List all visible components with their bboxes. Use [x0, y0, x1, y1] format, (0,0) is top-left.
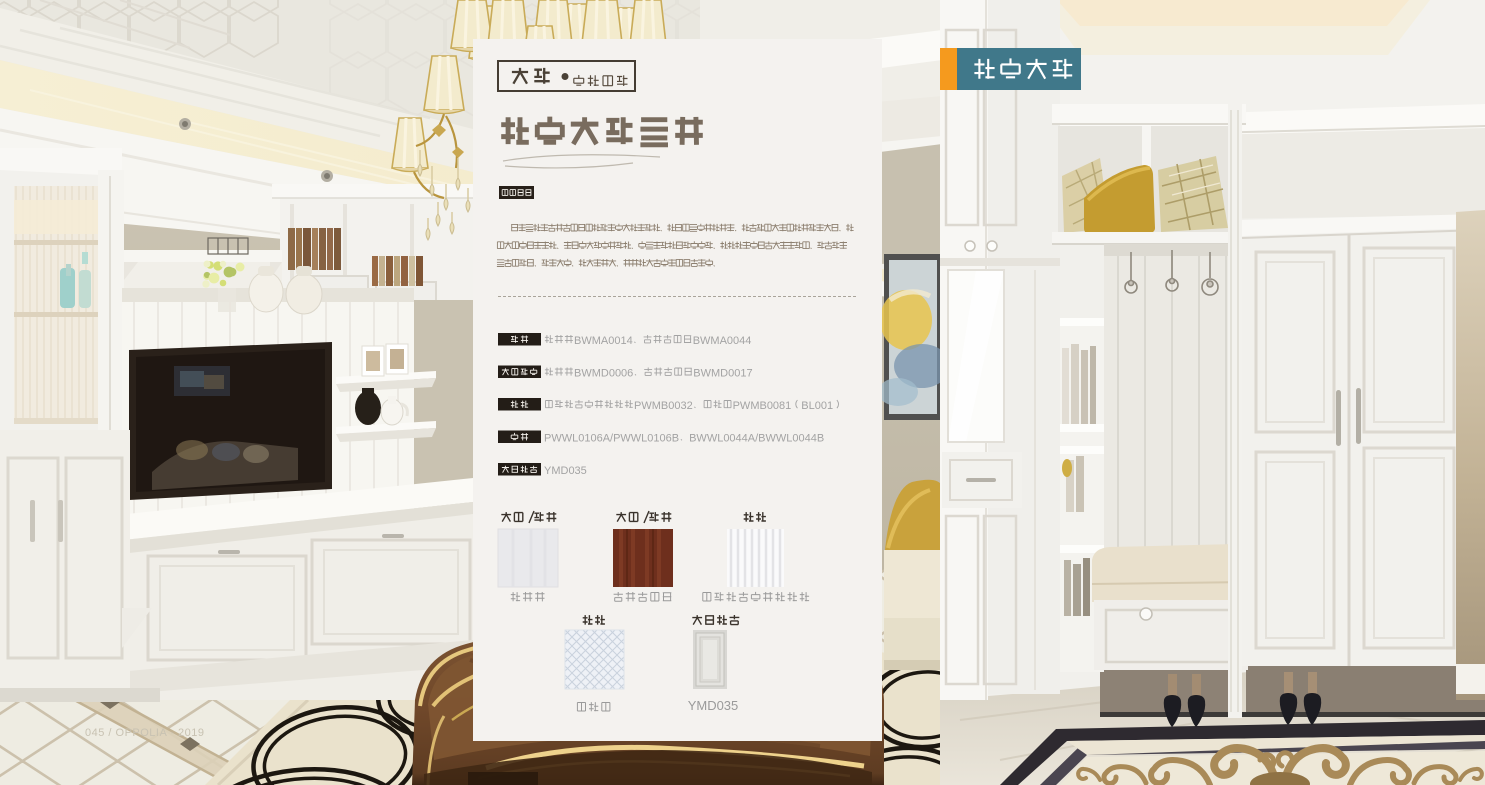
svg-text:BWWL0044A/BWWL0044B: BWWL0044A/BWWL0044B [689, 432, 824, 444]
svg-text:PWMB0032: PWMB0032 [634, 400, 693, 412]
svg-text:PWMB0081: PWMB0081 [733, 400, 792, 412]
svg-text:PWWL0106A/PWWL0106B: PWWL0106A/PWWL0106B [544, 432, 679, 444]
svg-text:BWMD0006: BWMD0006 [574, 367, 633, 379]
svg-text:BWMA0014: BWMA0014 [574, 335, 633, 347]
svg-text:BWMD0017: BWMD0017 [693, 367, 752, 379]
svg-text:BWMA0044: BWMA0044 [693, 335, 752, 347]
svg-text:BL001: BL001 [801, 400, 833, 412]
svg-text:YMD035: YMD035 [688, 698, 739, 713]
svg-text:YMD035: YMD035 [544, 465, 587, 477]
